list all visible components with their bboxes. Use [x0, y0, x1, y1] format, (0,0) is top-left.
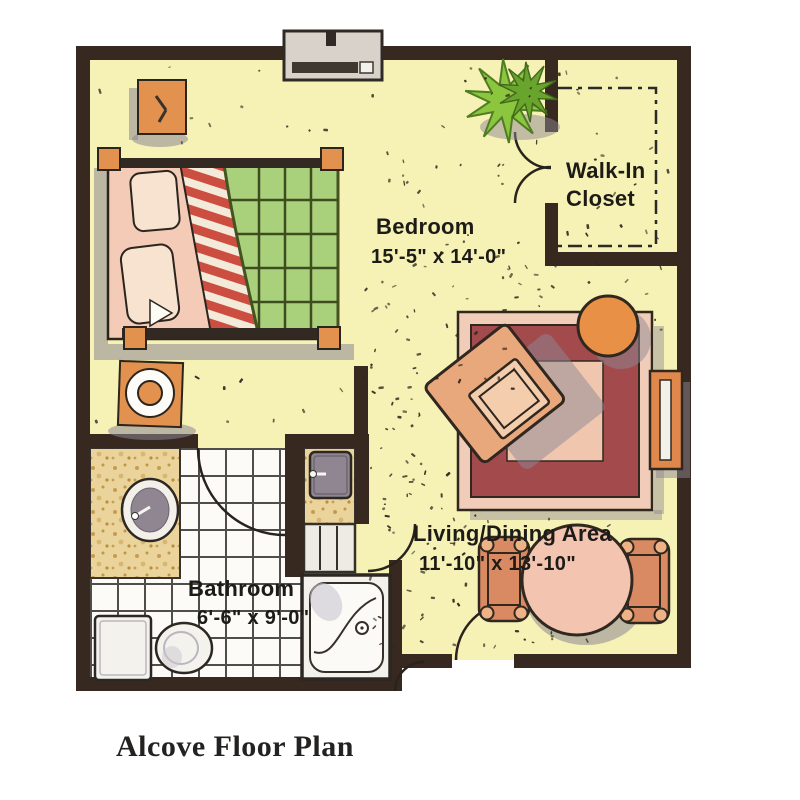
living-dining-label: Living/Dining Area: [413, 521, 612, 546]
bedroom-label: Bedroom: [376, 214, 475, 239]
headboard-rail: [102, 158, 342, 168]
living-dining-dimensions: 11'-10" x 13'-10": [419, 553, 576, 575]
bed-post: [124, 327, 146, 349]
wall-closet-south: [545, 252, 691, 266]
floor-plan-drawing: Bedroom 15'-5" x 14'-0" Walk-In Closet L…: [0, 0, 800, 800]
closet-label-line2: Closet: [566, 186, 635, 211]
plan-title: Alcove Floor Plan: [116, 730, 354, 763]
bed: [94, 148, 354, 360]
bathtub: [302, 575, 390, 679]
wall-right: [677, 46, 691, 668]
footboard-rail: [122, 328, 340, 339]
bathroom-dimensions: 6'-6" x 9'-0": [197, 607, 309, 629]
bedroom-dimensions: 15'-5" x 14'-0": [371, 246, 506, 268]
console-table: [650, 371, 690, 478]
bed-post: [321, 148, 343, 170]
wall-niche-east: [355, 434, 369, 524]
wall-niche-west: [285, 434, 304, 577]
closet-label-line1: Walk-In: [566, 158, 646, 183]
floor-plan-page: Bedroom 15'-5" x 14'-0" Walk-In Closet L…: [0, 0, 800, 800]
bathroom-label: Bathroom: [188, 576, 294, 601]
bed-post: [98, 148, 120, 170]
bed-post: [318, 327, 340, 349]
nightstand: [129, 80, 188, 147]
wall-bottom-entry-right: [514, 654, 691, 668]
pillow-top: [130, 170, 181, 232]
vanity-sink: [122, 479, 178, 541]
kitchenette-sink: [310, 452, 352, 498]
louvered-closet-door: [304, 524, 355, 572]
wall-left: [76, 46, 90, 691]
ac-unit: [284, 31, 382, 80]
